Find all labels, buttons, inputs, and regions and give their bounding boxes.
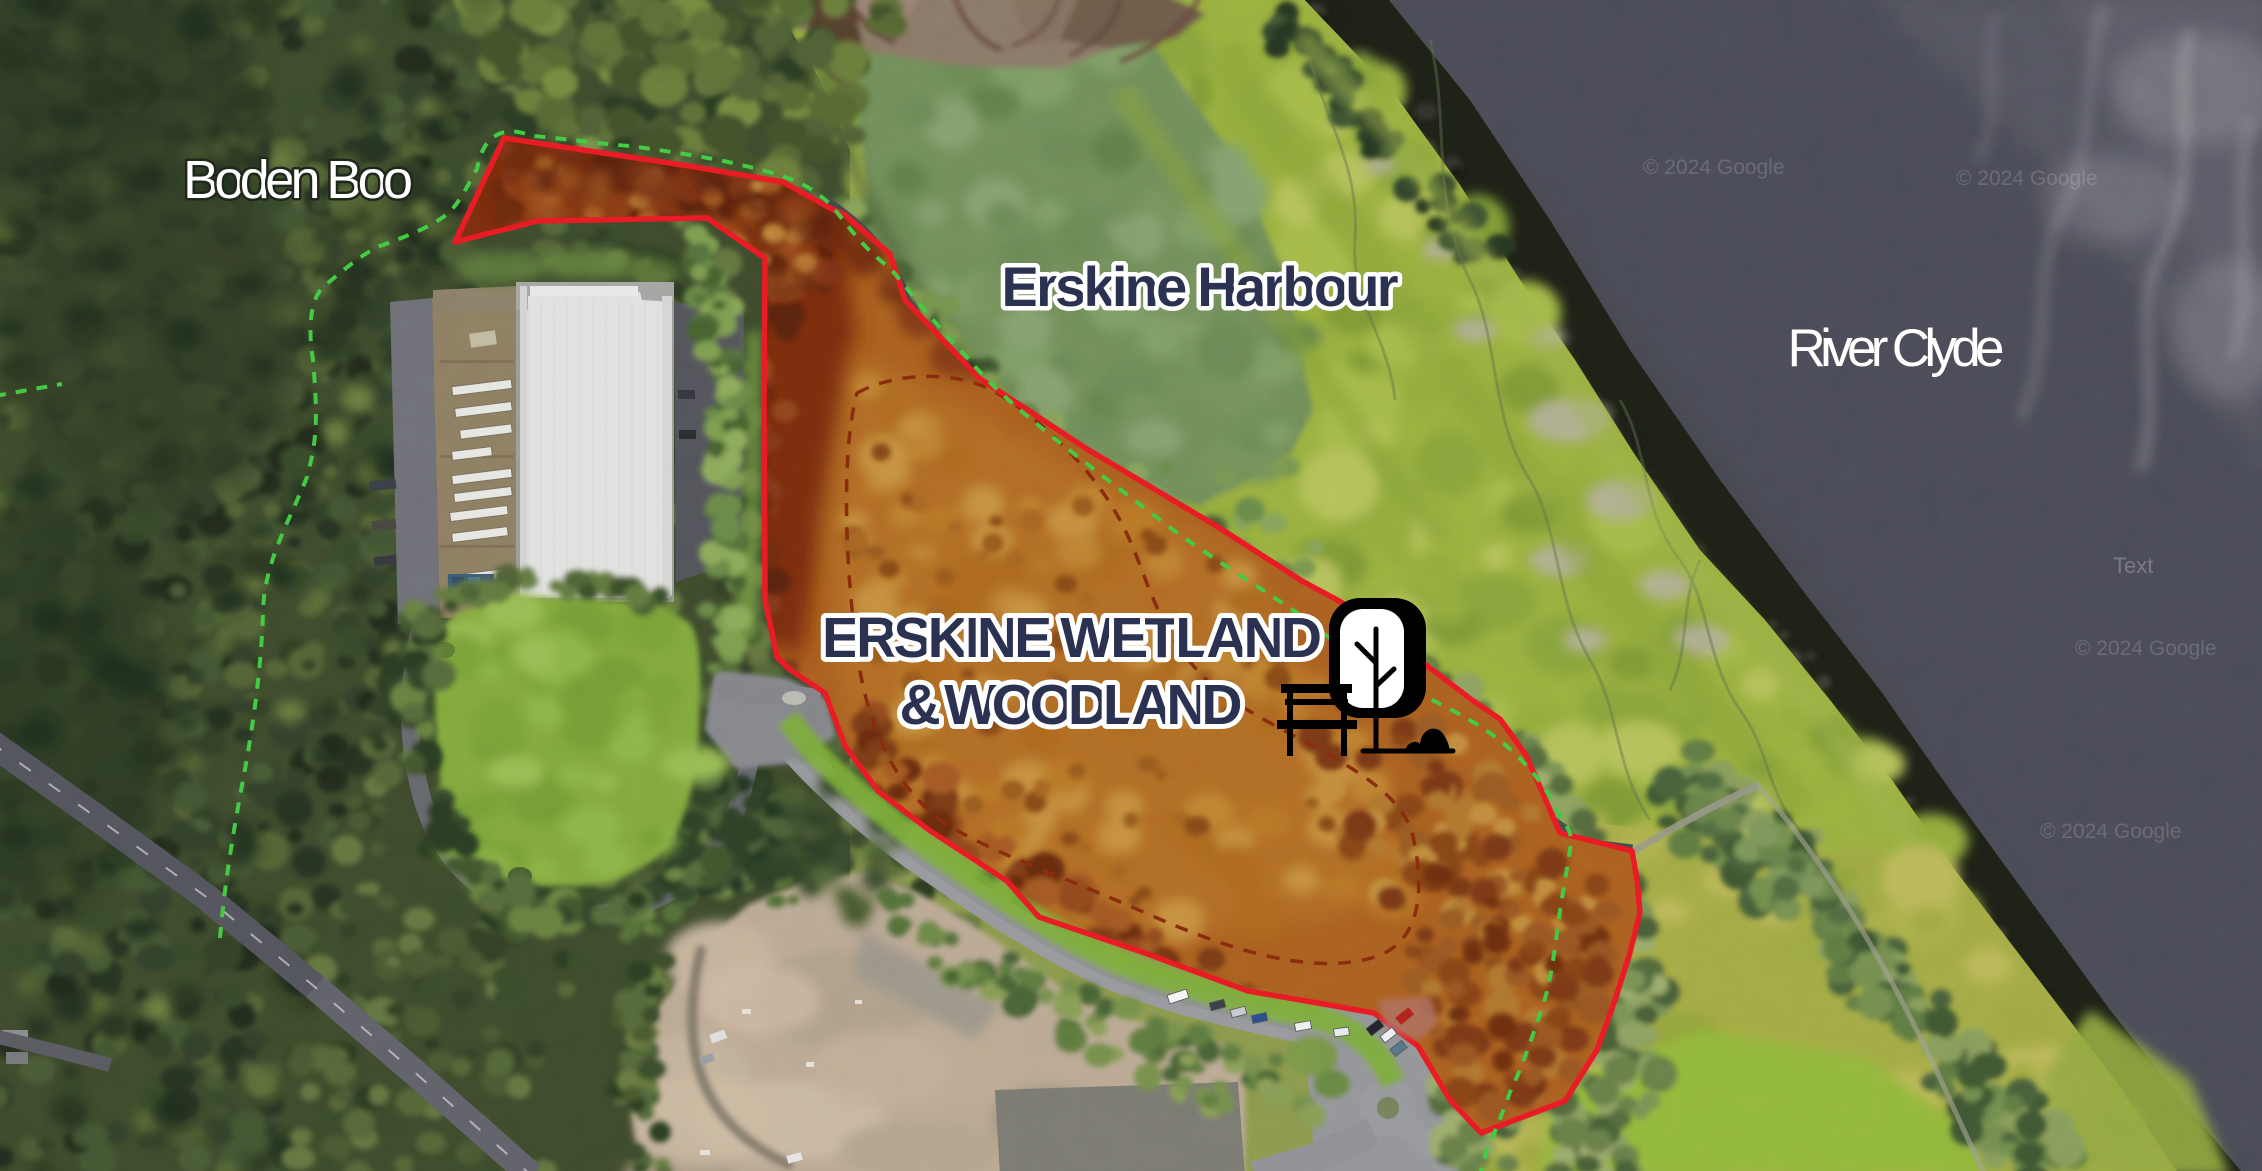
svg-text:© 2024 Google: © 2024 Google — [2040, 820, 2182, 843]
svg-text:© 2024 Google: © 2024 Google — [2075, 637, 2217, 660]
svg-text:Boden Boo: Boden Boo — [183, 150, 413, 210]
svg-text:& WOODLAND: & WOODLAND — [900, 673, 1243, 737]
svg-text:Erskine Harbour: Erskine Harbour — [1002, 255, 1399, 318]
svg-text:© 2024 Google: © 2024 Google — [1643, 156, 1785, 179]
svg-text:ERSKINE WETLAND: ERSKINE WETLAND — [822, 606, 1322, 670]
svg-text:Text: Text — [2113, 553, 2153, 578]
svg-text:River Clyde: River Clyde — [1788, 319, 2005, 378]
svg-text:© 2024 Google: © 2024 Google — [1956, 167, 2098, 190]
